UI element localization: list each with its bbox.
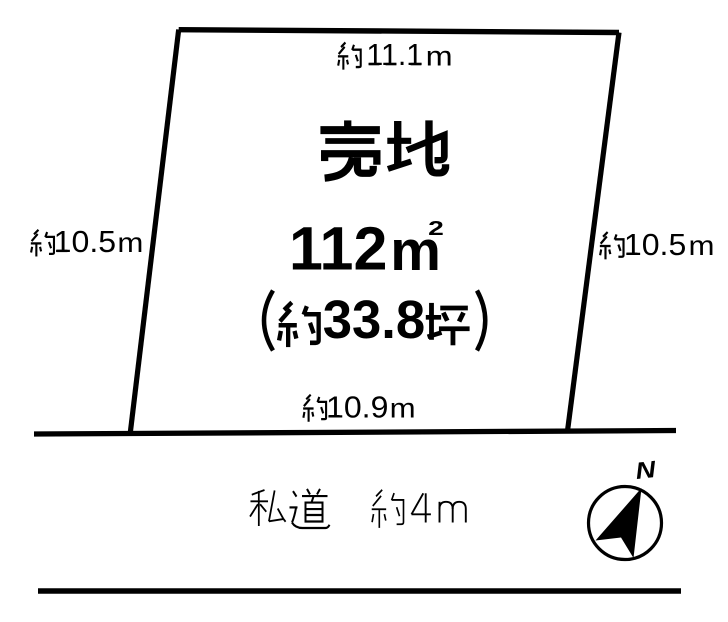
svg-text:10.5: 10.5 <box>624 227 686 262</box>
svg-text:10.9: 10.9 <box>326 389 388 424</box>
svg-text:m: m <box>390 392 416 423</box>
svg-text:m: m <box>426 40 453 71</box>
svg-text:33.8: 33.8 <box>323 290 426 350</box>
svg-text:2: 2 <box>428 218 444 240</box>
svg-text:10.5: 10.5 <box>54 224 116 259</box>
svg-text:11.1: 11.1 <box>366 39 423 72</box>
svg-text:m: m <box>689 230 715 261</box>
svg-text:m: m <box>117 227 143 258</box>
svg-text:112: 112 <box>289 215 387 283</box>
svg-text:N: N <box>634 456 658 484</box>
